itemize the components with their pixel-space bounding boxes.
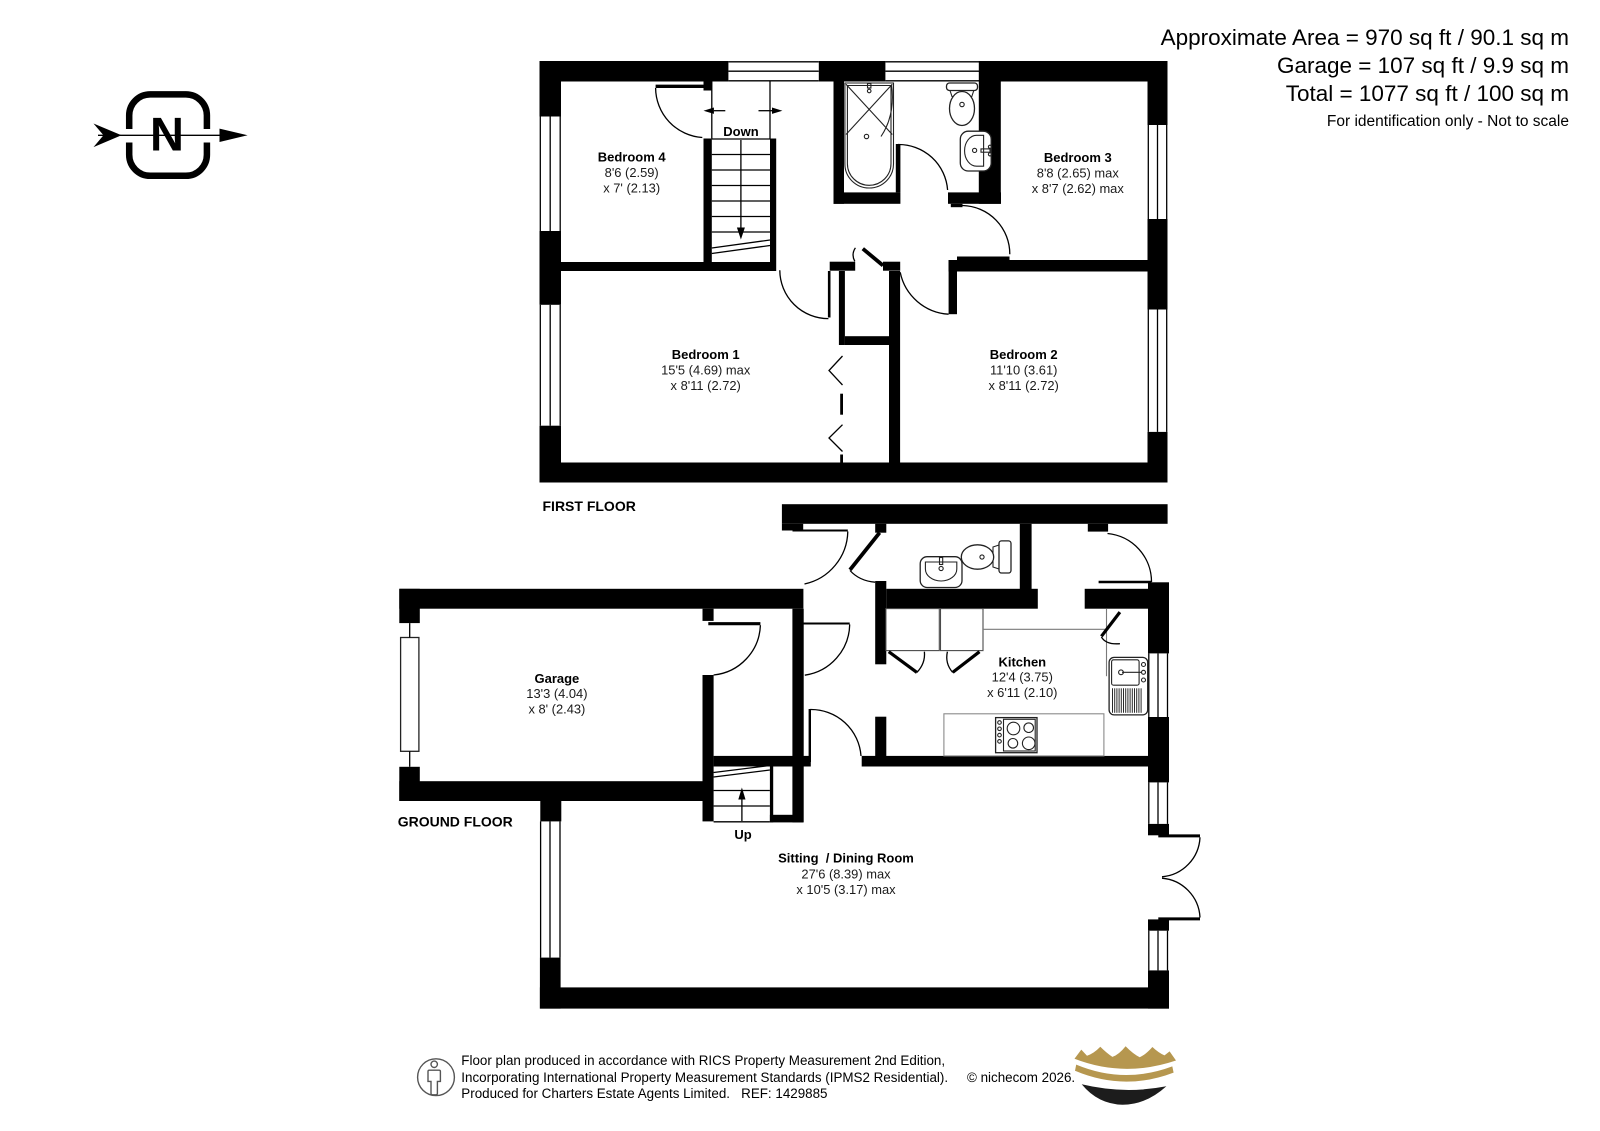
- svg-text:Bedroom 4: Bedroom 4: [598, 149, 667, 164]
- svg-text:13'3 (4.04): 13'3 (4.04): [526, 686, 587, 701]
- svg-text:GROUND FLOOR: GROUND FLOOR: [398, 814, 513, 830]
- svg-text:N: N: [150, 108, 184, 161]
- svg-text:x 6'11 (2.10): x 6'11 (2.10): [987, 685, 1057, 700]
- svg-text:Sitting / Dining Room: Sitting / Dining Room: [778, 851, 914, 866]
- svg-text:Incorporating International Pr: Incorporating International Property Mea…: [461, 1070, 948, 1085]
- svg-text:x 8'11 (2.72): x 8'11 (2.72): [671, 378, 741, 393]
- svg-text:Produced for Charters Estate A: Produced for Charters Estate Agents Limi…: [461, 1086, 827, 1101]
- svg-text:Floor plan produced in accorda: Floor plan produced in accordance with R…: [461, 1053, 945, 1068]
- svg-text:x 10'5 (3.17) max: x 10'5 (3.17) max: [796, 882, 896, 897]
- svg-text:Bedroom 3: Bedroom 3: [1044, 150, 1112, 165]
- svg-text:x 8'11 (2.72): x 8'11 (2.72): [989, 378, 1059, 393]
- svg-text:x 7' (2.13): x 7' (2.13): [603, 180, 660, 195]
- svg-text:12'4 (3.75): 12'4 (3.75): [992, 670, 1053, 685]
- svg-text:Kitchen: Kitchen: [998, 654, 1046, 669]
- svg-text:Approximate Area = 970 sq ft /: Approximate Area = 970 sq ft / 90.1 sq m: [1161, 25, 1569, 50]
- svg-text:11'10 (3.61): 11'10 (3.61): [990, 362, 1057, 377]
- svg-text:Up: Up: [734, 827, 751, 842]
- svg-text:Total = 1077 sq ft / 100 sq m: Total = 1077 sq ft / 100 sq m: [1286, 81, 1569, 106]
- svg-text:Down: Down: [723, 124, 758, 139]
- svg-text:x 8'7 (2.62) max: x 8'7 (2.62) max: [1032, 181, 1125, 196]
- svg-text:© nichecom 2026.: © nichecom 2026.: [967, 1070, 1075, 1085]
- svg-text:x 8' (2.43): x 8' (2.43): [528, 702, 585, 717]
- svg-text:Bedroom 1: Bedroom 1: [672, 347, 740, 362]
- svg-text:15'5 (4.69) max: 15'5 (4.69) max: [661, 362, 751, 377]
- svg-text:For identification only - Not: For identification only - Not to scale: [1327, 113, 1569, 130]
- svg-text:8'8 (2.65) max: 8'8 (2.65) max: [1037, 165, 1120, 180]
- svg-text:FIRST FLOOR: FIRST FLOOR: [543, 498, 636, 514]
- svg-text:Bedroom 2: Bedroom 2: [990, 347, 1058, 362]
- svg-text:27'6 (8.39) max: 27'6 (8.39) max: [801, 867, 891, 882]
- svg-text:Garage: Garage: [534, 671, 579, 686]
- svg-text:Garage = 107 sq ft / 9.9 sq m: Garage = 107 sq ft / 9.9 sq m: [1277, 53, 1569, 78]
- svg-text:8'6 (2.59): 8'6 (2.59): [605, 165, 659, 180]
